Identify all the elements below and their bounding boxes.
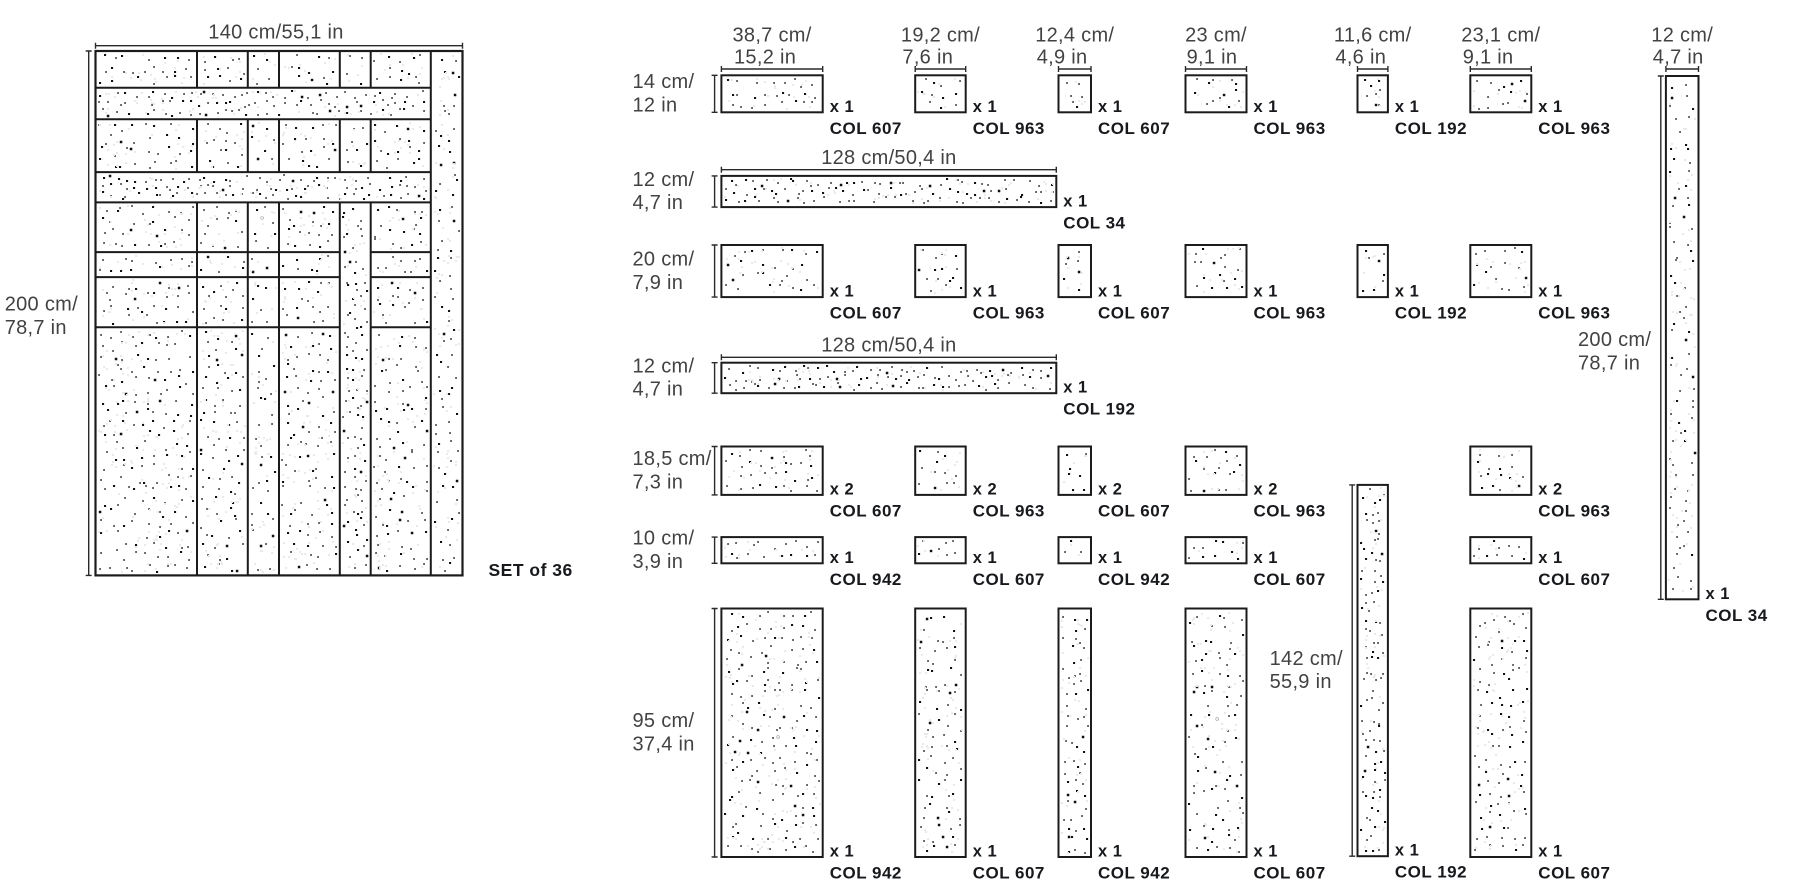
svg-text:x 1: x 1 xyxy=(973,98,997,116)
svg-text:x 1: x 1 xyxy=(1098,843,1122,861)
svg-text:COL 192: COL 192 xyxy=(1395,863,1467,882)
svg-text:COL 607: COL 607 xyxy=(830,501,902,520)
svg-text:COL 192: COL 192 xyxy=(1395,119,1467,138)
svg-text:4,9 in: 4,9 in xyxy=(1037,46,1088,68)
svg-text:15,2 in: 15,2 in xyxy=(734,46,796,68)
svg-text:142 cm/: 142 cm/ xyxy=(1270,648,1343,670)
svg-text:18,5 cm/: 18,5 cm/ xyxy=(633,448,712,470)
svg-text:x 2: x 2 xyxy=(1254,480,1278,498)
svg-text:COL 963: COL 963 xyxy=(1538,304,1610,323)
svg-text:x 2: x 2 xyxy=(1098,480,1122,498)
svg-text:23 cm/: 23 cm/ xyxy=(1185,25,1247,47)
svg-text:23,1 cm/: 23,1 cm/ xyxy=(1461,25,1540,47)
svg-text:20 cm/: 20 cm/ xyxy=(633,248,695,270)
svg-text:COL 34: COL 34 xyxy=(1063,214,1125,233)
svg-text:COL 963: COL 963 xyxy=(973,501,1045,520)
svg-text:x 1: x 1 xyxy=(1254,283,1278,301)
svg-text:12,4 cm/: 12,4 cm/ xyxy=(1035,25,1114,47)
svg-text:7,6 in: 7,6 in xyxy=(902,46,953,68)
svg-text:x 1: x 1 xyxy=(973,843,997,861)
svg-text:14 cm/: 14 cm/ xyxy=(633,71,695,93)
svg-text:200 cm/: 200 cm/ xyxy=(1578,329,1651,351)
svg-text:x 1: x 1 xyxy=(1395,98,1419,116)
svg-text:4,6 in: 4,6 in xyxy=(1335,46,1386,68)
svg-text:19,2 cm/: 19,2 cm/ xyxy=(901,25,980,47)
svg-text:COL 963: COL 963 xyxy=(1538,501,1610,520)
svg-text:10 cm/: 10 cm/ xyxy=(633,528,695,550)
svg-text:38,7 cm/: 38,7 cm/ xyxy=(732,25,811,47)
svg-text:x 1: x 1 xyxy=(1063,379,1087,397)
svg-text:3,9 in: 3,9 in xyxy=(633,551,684,573)
svg-text:37,4 in: 37,4 in xyxy=(633,733,695,755)
svg-text:COL 607: COL 607 xyxy=(830,119,902,138)
svg-text:x 1: x 1 xyxy=(973,283,997,301)
svg-text:4,7 in: 4,7 in xyxy=(633,379,684,401)
svg-text:9,1 in: 9,1 in xyxy=(1463,46,1514,68)
svg-text:COL 34: COL 34 xyxy=(1706,606,1768,625)
svg-text:COL 607: COL 607 xyxy=(1098,501,1170,520)
svg-text:9,1 in: 9,1 in xyxy=(1187,46,1238,68)
svg-text:55,9 in: 55,9 in xyxy=(1270,671,1332,693)
svg-text:COL 942: COL 942 xyxy=(1098,570,1170,589)
svg-text:11,6 cm/: 11,6 cm/ xyxy=(1334,25,1412,47)
svg-text:x 1: x 1 xyxy=(973,549,997,567)
svg-text:x 1: x 1 xyxy=(1538,843,1562,861)
svg-text:COL 942: COL 942 xyxy=(830,864,902,883)
svg-text:128 cm/50,4 in: 128 cm/50,4 in xyxy=(821,335,956,357)
svg-text:COL 607: COL 607 xyxy=(1098,304,1170,323)
svg-text:x 1: x 1 xyxy=(1098,549,1122,567)
svg-text:x 2: x 2 xyxy=(830,480,854,498)
svg-text:COL 192: COL 192 xyxy=(1063,400,1135,419)
svg-text:COL 192: COL 192 xyxy=(1395,304,1467,323)
svg-text:x 1: x 1 xyxy=(830,283,854,301)
svg-text:COL 607: COL 607 xyxy=(973,864,1045,883)
svg-text:x 1: x 1 xyxy=(830,549,854,567)
svg-text:COL 607: COL 607 xyxy=(1254,864,1326,883)
svg-text:COL 607: COL 607 xyxy=(973,570,1045,589)
svg-text:SET of 36: SET of 36 xyxy=(489,560,573,580)
svg-text:12 cm/: 12 cm/ xyxy=(633,169,695,191)
svg-text:140 cm/55,1 in: 140 cm/55,1 in xyxy=(208,22,343,44)
svg-text:x 1: x 1 xyxy=(830,843,854,861)
svg-text:x 1: x 1 xyxy=(1395,842,1419,860)
svg-text:COL 963: COL 963 xyxy=(1254,119,1326,138)
svg-text:7,3 in: 7,3 in xyxy=(633,471,684,493)
svg-text:COL 607: COL 607 xyxy=(1254,570,1326,589)
svg-text:x 1: x 1 xyxy=(1098,283,1122,301)
svg-text:x 1: x 1 xyxy=(1706,585,1730,603)
svg-text:x 1: x 1 xyxy=(1395,283,1419,301)
svg-text:78,7 in: 78,7 in xyxy=(5,317,67,339)
svg-text:x 1: x 1 xyxy=(1063,193,1087,211)
svg-text:95 cm/: 95 cm/ xyxy=(633,710,695,732)
svg-text:4,7 in: 4,7 in xyxy=(633,192,684,214)
svg-text:COL 963: COL 963 xyxy=(1538,119,1610,138)
svg-text:COL 942: COL 942 xyxy=(1098,864,1170,883)
svg-text:12 in: 12 in xyxy=(633,95,678,117)
svg-text:128 cm/50,4 in: 128 cm/50,4 in xyxy=(821,147,956,169)
svg-text:COL 607: COL 607 xyxy=(830,304,902,323)
svg-text:x 1: x 1 xyxy=(1538,549,1562,567)
svg-text:200 cm/: 200 cm/ xyxy=(5,294,78,316)
svg-text:x 1: x 1 xyxy=(1254,549,1278,567)
svg-text:x 2: x 2 xyxy=(973,480,997,498)
svg-text:COL 607: COL 607 xyxy=(1538,570,1610,589)
svg-text:x 1: x 1 xyxy=(1254,843,1278,861)
svg-text:x 1: x 1 xyxy=(1538,283,1562,301)
svg-text:4,7 in: 4,7 in xyxy=(1653,46,1704,68)
svg-text:x 1: x 1 xyxy=(1538,98,1562,116)
svg-text:x 1: x 1 xyxy=(830,98,854,116)
svg-text:x 2: x 2 xyxy=(1538,480,1562,498)
svg-text:78,7 in: 78,7 in xyxy=(1578,352,1640,374)
svg-text:COL 963: COL 963 xyxy=(1254,501,1326,520)
svg-text:7,9 in: 7,9 in xyxy=(633,272,684,294)
svg-text:12 cm/: 12 cm/ xyxy=(1651,25,1713,47)
svg-text:COL 607: COL 607 xyxy=(1538,864,1610,883)
svg-text:COL 963: COL 963 xyxy=(1254,304,1326,323)
svg-text:12 cm/: 12 cm/ xyxy=(633,355,695,377)
svg-text:COL 963: COL 963 xyxy=(973,304,1045,323)
svg-text:COL 942: COL 942 xyxy=(830,570,902,589)
svg-text:x 1: x 1 xyxy=(1098,98,1122,116)
svg-text:COL 607: COL 607 xyxy=(1098,119,1170,138)
svg-text:COL 963: COL 963 xyxy=(973,119,1045,138)
svg-text:x 1: x 1 xyxy=(1254,98,1278,116)
